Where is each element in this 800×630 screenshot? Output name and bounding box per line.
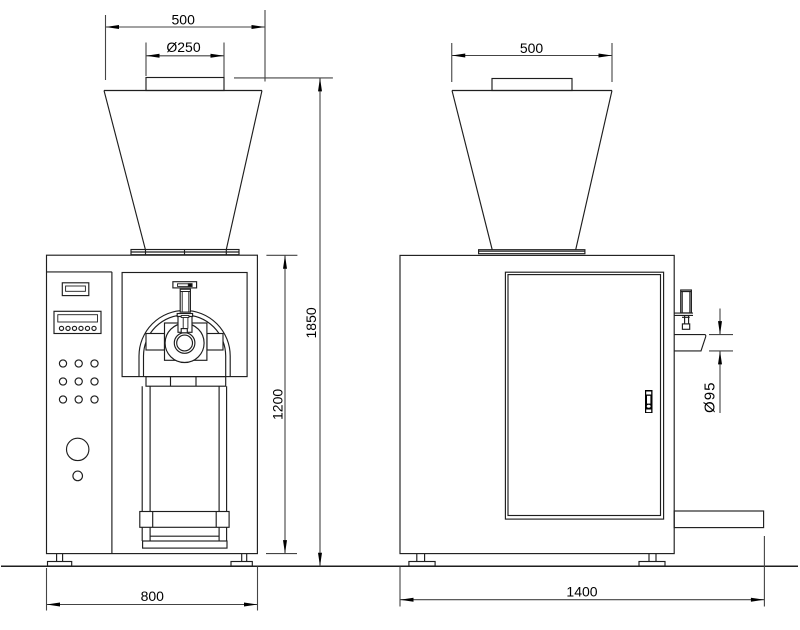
- svg-text:500: 500: [172, 11, 196, 27]
- svg-text:1400: 1400: [566, 584, 597, 600]
- svg-text:Ø250: Ø250: [166, 39, 200, 55]
- svg-text:500: 500: [520, 40, 544, 56]
- svg-text:1200: 1200: [270, 389, 286, 420]
- svg-text:1850: 1850: [303, 307, 319, 338]
- svg-text:800: 800: [141, 588, 165, 604]
- svg-text:Ø95: Ø95: [701, 381, 718, 413]
